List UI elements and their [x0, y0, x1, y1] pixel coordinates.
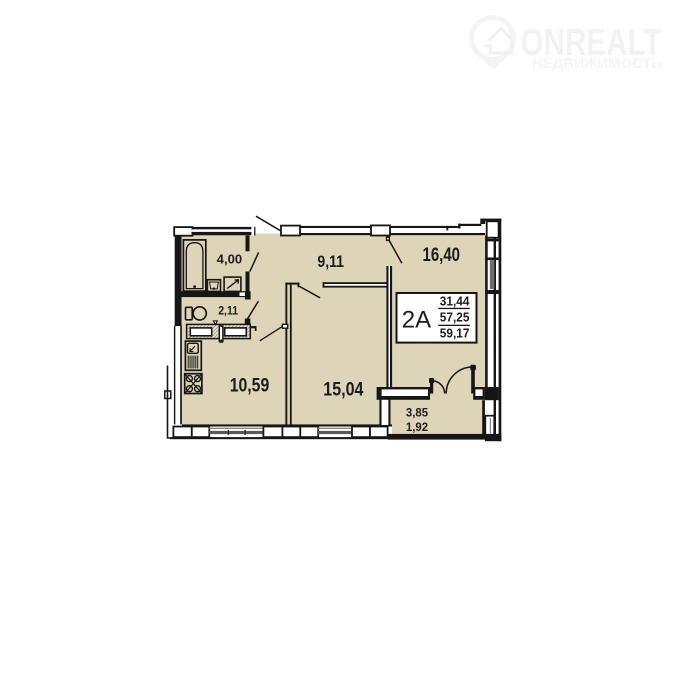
svg-text:3,85: 3,85: [406, 406, 428, 420]
svg-text:2,11: 2,11: [218, 303, 238, 317]
svg-text:16,40: 16,40: [423, 245, 461, 266]
svg-text:9,11: 9,11: [317, 253, 344, 271]
svg-text:2A: 2A: [402, 306, 431, 333]
svg-text:59,17: 59,17: [440, 325, 470, 340]
svg-text:57,25: 57,25: [440, 310, 470, 325]
svg-text:НЕДВИЖИМОСТЬ: НЕДВИЖИМОСТЬ: [532, 56, 662, 71]
svg-text:10,59: 10,59: [230, 374, 270, 396]
svg-text:15,04: 15,04: [323, 378, 363, 400]
svg-text:4,00: 4,00: [217, 252, 242, 267]
svg-text:1,92: 1,92: [406, 420, 428, 434]
svg-text:31,44: 31,44: [440, 294, 470, 309]
